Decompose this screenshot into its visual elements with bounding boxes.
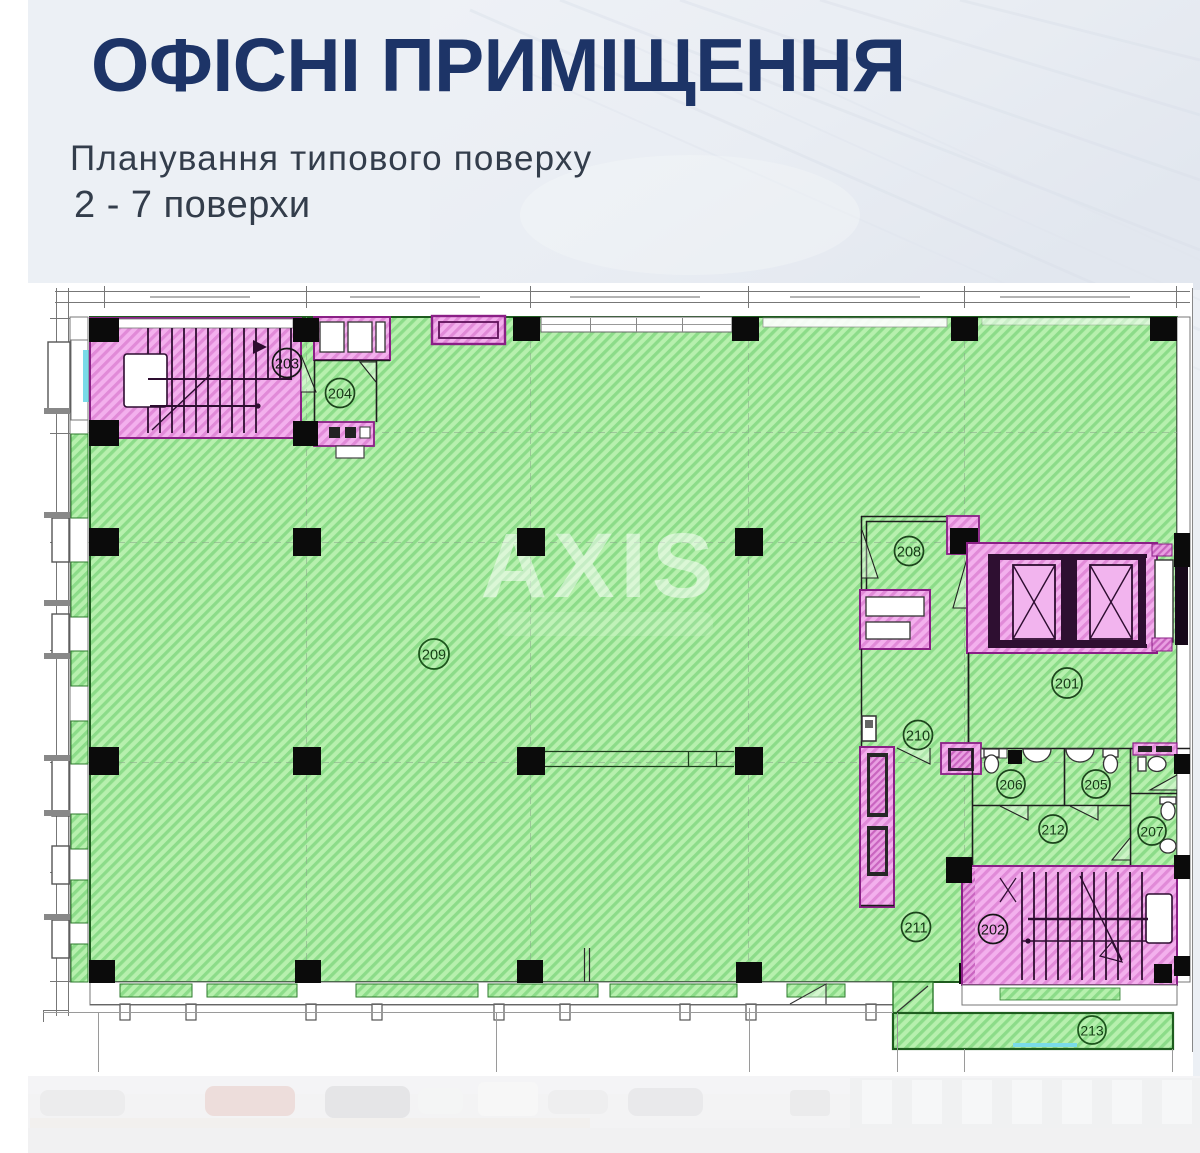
svg-text:210: 210 bbox=[906, 729, 930, 745]
svg-text:AXIS: AXIS bbox=[481, 515, 720, 617]
svg-text:206: 206 bbox=[999, 777, 1023, 793]
svg-text:203: 203 bbox=[275, 357, 299, 373]
svg-text:212: 212 bbox=[1041, 822, 1065, 838]
svg-text:207: 207 bbox=[1140, 824, 1164, 840]
svg-text:208: 208 bbox=[897, 545, 921, 561]
svg-text:205: 205 bbox=[1084, 777, 1108, 793]
svg-text:202: 202 bbox=[981, 923, 1005, 939]
svg-text:213: 213 bbox=[1080, 1023, 1104, 1039]
svg-text:211: 211 bbox=[904, 921, 927, 937]
svg-text:209: 209 bbox=[422, 648, 446, 664]
svg-text:201: 201 bbox=[1055, 677, 1079, 693]
svg-text:204: 204 bbox=[328, 387, 352, 403]
